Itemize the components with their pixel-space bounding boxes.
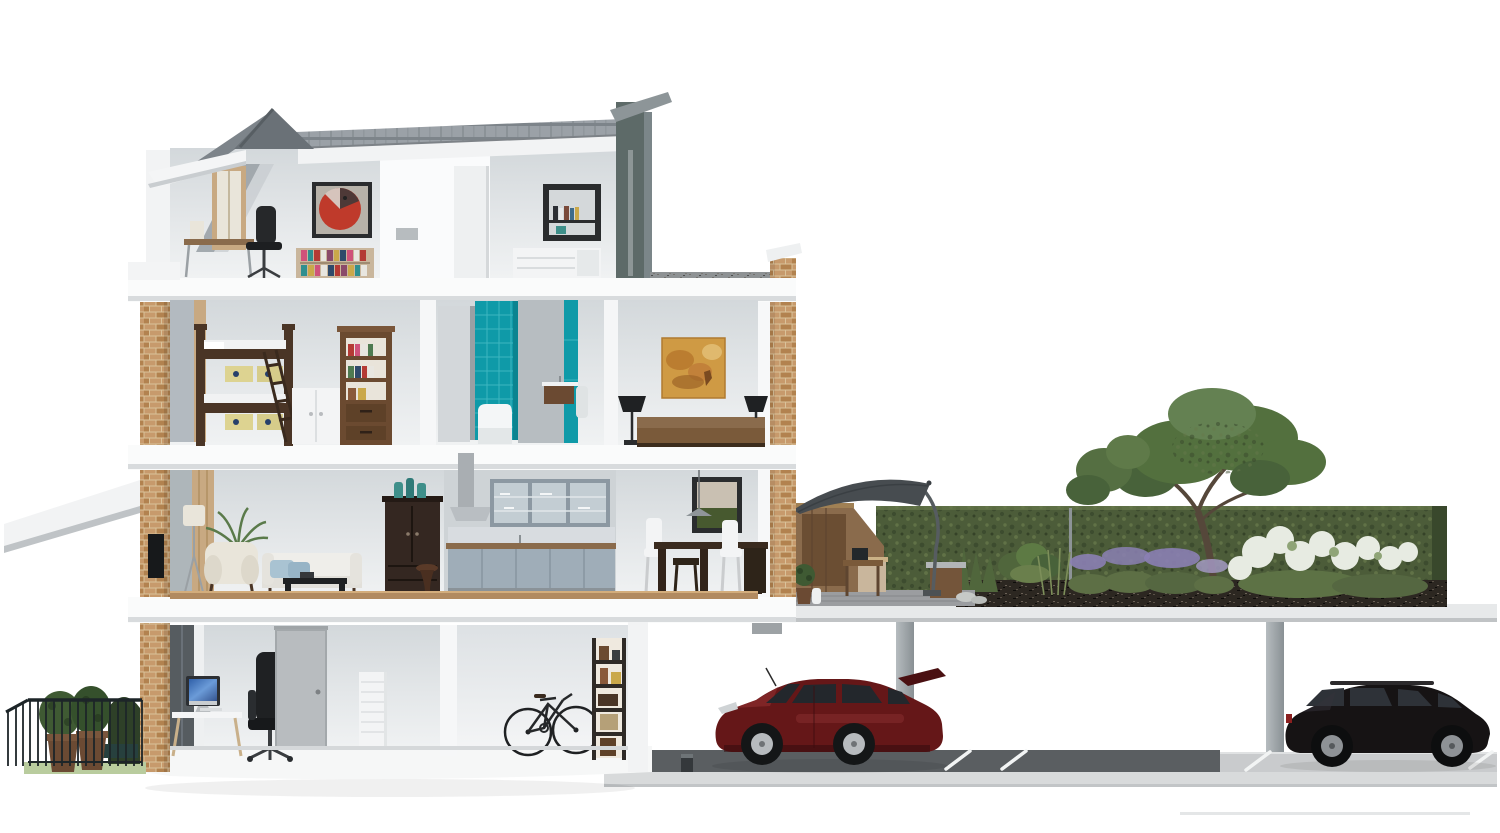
building-cross-section-illustration — [0, 0, 1500, 833]
first-floor — [170, 453, 768, 599]
downstand-beam — [752, 622, 782, 634]
bathroom-wall — [518, 300, 564, 443]
window-left — [170, 300, 194, 442]
illustration-canvas — [0, 0, 1500, 833]
open-door — [438, 306, 470, 442]
keyboard — [200, 708, 222, 711]
dormer-window — [212, 166, 246, 250]
second-floor — [170, 300, 768, 447]
building-section — [128, 92, 802, 797]
glass-upper-cabinets — [490, 479, 610, 527]
front-garden — [4, 480, 146, 774]
wood-counter — [446, 543, 616, 549]
floating-vanity — [544, 386, 574, 404]
white-cabinet — [292, 388, 340, 444]
door-handle — [316, 690, 321, 695]
taillight — [1286, 714, 1292, 723]
bathroom — [475, 300, 588, 444]
partition-wall — [440, 625, 457, 756]
towel — [576, 386, 588, 418]
double-bed — [637, 417, 765, 447]
white-drawer-unit — [359, 672, 387, 747]
vanity-top — [542, 382, 578, 386]
orange-abstract-painting — [662, 338, 725, 398]
tall-bookcase — [337, 326, 395, 445]
partition-wall — [420, 300, 436, 445]
attic-door — [454, 166, 488, 278]
vent-grille — [396, 228, 418, 240]
grey-internal-door — [274, 626, 328, 748]
table-object — [852, 548, 868, 560]
ground-floor — [170, 622, 648, 772]
foundation — [128, 746, 652, 779]
rear-wall — [628, 622, 648, 772]
white-dresser — [513, 248, 601, 278]
ladder-shelf — [592, 638, 626, 760]
saddle — [534, 694, 546, 698]
low-bookcase — [296, 248, 374, 278]
roof-garden — [793, 388, 1447, 607]
backsplash — [448, 527, 615, 545]
roof-rail — [1330, 681, 1434, 685]
red-abstract-artwork — [312, 182, 372, 238]
chimney — [610, 92, 672, 280]
patio-heater — [812, 588, 821, 604]
kerb-line — [1180, 812, 1470, 815]
wall-vent-box — [148, 534, 164, 578]
antenna — [766, 668, 776, 686]
desk-box — [190, 221, 204, 239]
garage-column-right — [1266, 622, 1284, 762]
side-console — [744, 548, 766, 593]
car-park — [604, 604, 1497, 815]
box-shelf — [543, 184, 601, 241]
